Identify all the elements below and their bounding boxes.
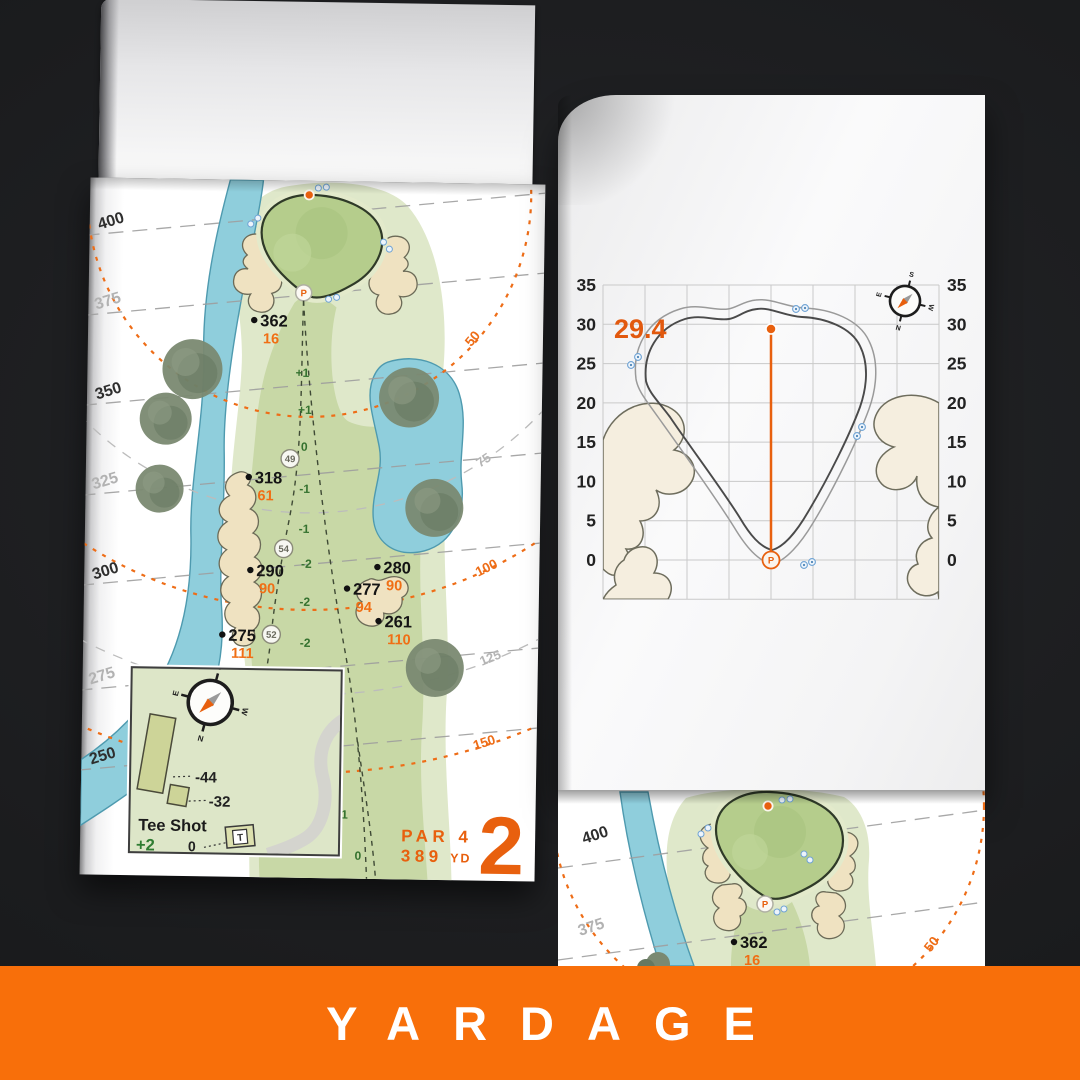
svg-text:-2: -2	[301, 557, 312, 571]
svg-text:110: 110	[387, 632, 411, 648]
hole-map: P 49	[80, 177, 546, 881]
par-label: PAR 4	[401, 826, 473, 846]
svg-text:5: 5	[586, 511, 596, 531]
svg-text:0: 0	[301, 440, 308, 454]
svg-text:-1: -1	[299, 482, 310, 496]
svg-text:P: P	[300, 288, 307, 299]
tee-box-small	[167, 785, 189, 807]
pin-icon	[305, 190, 314, 199]
svg-text:300: 300	[90, 559, 121, 583]
svg-text:150: 150	[471, 732, 497, 753]
svg-text:-1: -1	[299, 522, 310, 536]
svg-text:16: 16	[263, 331, 279, 347]
svg-text:49: 49	[285, 454, 296, 465]
svg-text:277: 277	[353, 581, 381, 599]
pin-icon	[763, 801, 772, 810]
compass-icon: S N E W	[869, 265, 941, 339]
y-axis-left: 35 30 25 20 15 10 5 0	[577, 275, 597, 570]
svg-text:-2: -2	[299, 595, 310, 609]
tee-shot-inset: -44 -32 0 T Tee Shot +2	[126, 652, 345, 859]
svg-text:35: 35	[947, 275, 967, 295]
svg-text:S: S	[908, 271, 915, 279]
svg-text:+1: +1	[298, 403, 312, 417]
inset-title: Tee Shot	[138, 816, 207, 835]
arc-labels: 50 75 100 125 150	[455, 328, 508, 754]
svg-text:30: 30	[947, 314, 967, 334]
blank-page-flap	[98, 0, 535, 184]
svg-text:P: P	[768, 556, 775, 567]
svg-text:15: 15	[577, 432, 597, 452]
svg-text:362: 362	[260, 312, 288, 330]
yardage-marker: 275111	[219, 627, 256, 663]
svg-text:111: 111	[231, 646, 254, 662]
hole-map-page: P 49	[80, 177, 546, 881]
yardage-value: 389	[401, 846, 443, 866]
svg-text:261: 261	[384, 613, 412, 631]
hole-number: 2	[478, 801, 525, 882]
green-chart: P 29.4 35 30 25 20	[558, 95, 985, 790]
svg-text:94: 94	[356, 600, 372, 616]
tree-icon	[139, 392, 192, 445]
yardage-unit: YD	[450, 851, 472, 865]
pin-icon	[766, 324, 776, 334]
svg-text:290: 290	[256, 562, 284, 580]
svg-text:-44: -44	[195, 769, 218, 786]
contour-labels: 400 375	[576, 823, 611, 939]
next-hole-map: P 400 375 50 362 16	[558, 790, 985, 966]
svg-text:61: 61	[257, 488, 273, 504]
depth-measure: P	[763, 324, 780, 569]
banner-title: YARDAGE	[326, 996, 788, 1051]
svg-text:0: 0	[947, 550, 957, 570]
svg-text:100: 100	[473, 556, 500, 579]
svg-text:0: 0	[586, 550, 596, 570]
yardage-book-product-image: P 49	[0, 0, 1080, 1080]
svg-text:5: 5	[947, 511, 957, 531]
svg-text:75: 75	[473, 450, 493, 471]
svg-text:389 YD: 389 YD	[401, 846, 472, 866]
svg-text:25: 25	[947, 354, 967, 374]
svg-text:280: 280	[383, 559, 411, 577]
svg-text:125: 125	[477, 647, 503, 669]
contour-labels: 400 375 350 325 300 275 250	[85, 209, 127, 769]
svg-text:N: N	[895, 325, 902, 333]
tee-marker: T	[225, 825, 255, 848]
svg-text:W: W	[926, 303, 934, 311]
svg-text:E: E	[876, 291, 884, 298]
svg-text:90: 90	[386, 578, 402, 594]
svg-text:50: 50	[921, 934, 942, 955]
next-page-preview: P 400 375 50 362 16	[558, 790, 985, 966]
svg-text:50: 50	[462, 328, 483, 349]
green-depth-value: 29.4	[614, 314, 667, 344]
svg-text:275: 275	[87, 664, 118, 688]
y-axis-right: 35 30 25 20 15 10 5 0	[947, 275, 967, 570]
tree-icon	[135, 464, 184, 513]
svg-text:90: 90	[259, 581, 275, 597]
svg-text:54: 54	[278, 544, 289, 555]
svg-text:-32: -32	[209, 793, 231, 810]
svg-text:T: T	[237, 833, 244, 844]
svg-text:325: 325	[90, 469, 121, 493]
yardage-book-left: P 49	[80, 0, 549, 882]
svg-text:25: 25	[577, 354, 597, 374]
svg-text:0: 0	[354, 849, 361, 863]
svg-text:400: 400	[96, 209, 127, 233]
svg-text:+1: +1	[295, 366, 309, 380]
svg-text:275: 275	[228, 627, 256, 645]
svg-text:30: 30	[577, 314, 597, 334]
svg-text:20: 20	[947, 393, 967, 413]
svg-text:52: 52	[266, 630, 277, 641]
green-center-marker: P	[296, 285, 312, 301]
svg-text:400: 400	[580, 823, 611, 847]
svg-text:10: 10	[577, 471, 597, 491]
svg-text:20: 20	[577, 393, 597, 413]
svg-text:362: 362	[740, 934, 768, 952]
svg-text:16: 16	[744, 953, 760, 966]
svg-text:15: 15	[947, 432, 967, 452]
svg-text:-2: -2	[300, 636, 311, 650]
svg-text:P: P	[762, 900, 769, 911]
svg-text:350: 350	[93, 379, 124, 403]
svg-text:0: 0	[188, 838, 196, 854]
green-detail-page: P 29.4 35 30 25 20	[558, 95, 985, 790]
svg-text:10: 10	[947, 471, 967, 491]
yardage-banner: YARDAGE	[0, 966, 1080, 1080]
svg-text:318: 318	[255, 469, 283, 487]
svg-text:35: 35	[577, 275, 597, 295]
svg-text:375: 375	[576, 915, 607, 939]
